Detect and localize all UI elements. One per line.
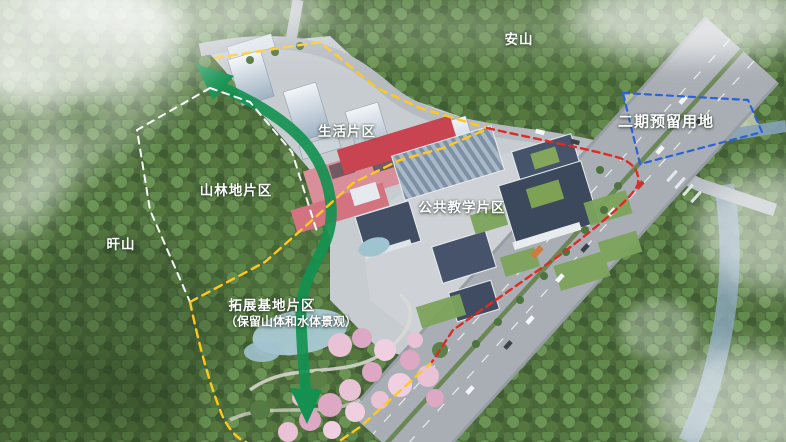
rendering-canvas — [0, 0, 786, 442]
masterplan-aerial-rendering: 安山 二期预留用地 生活片区 山林地片区 旰山 公共教学片区 拓展基地片区 （保… — [0, 0, 786, 442]
